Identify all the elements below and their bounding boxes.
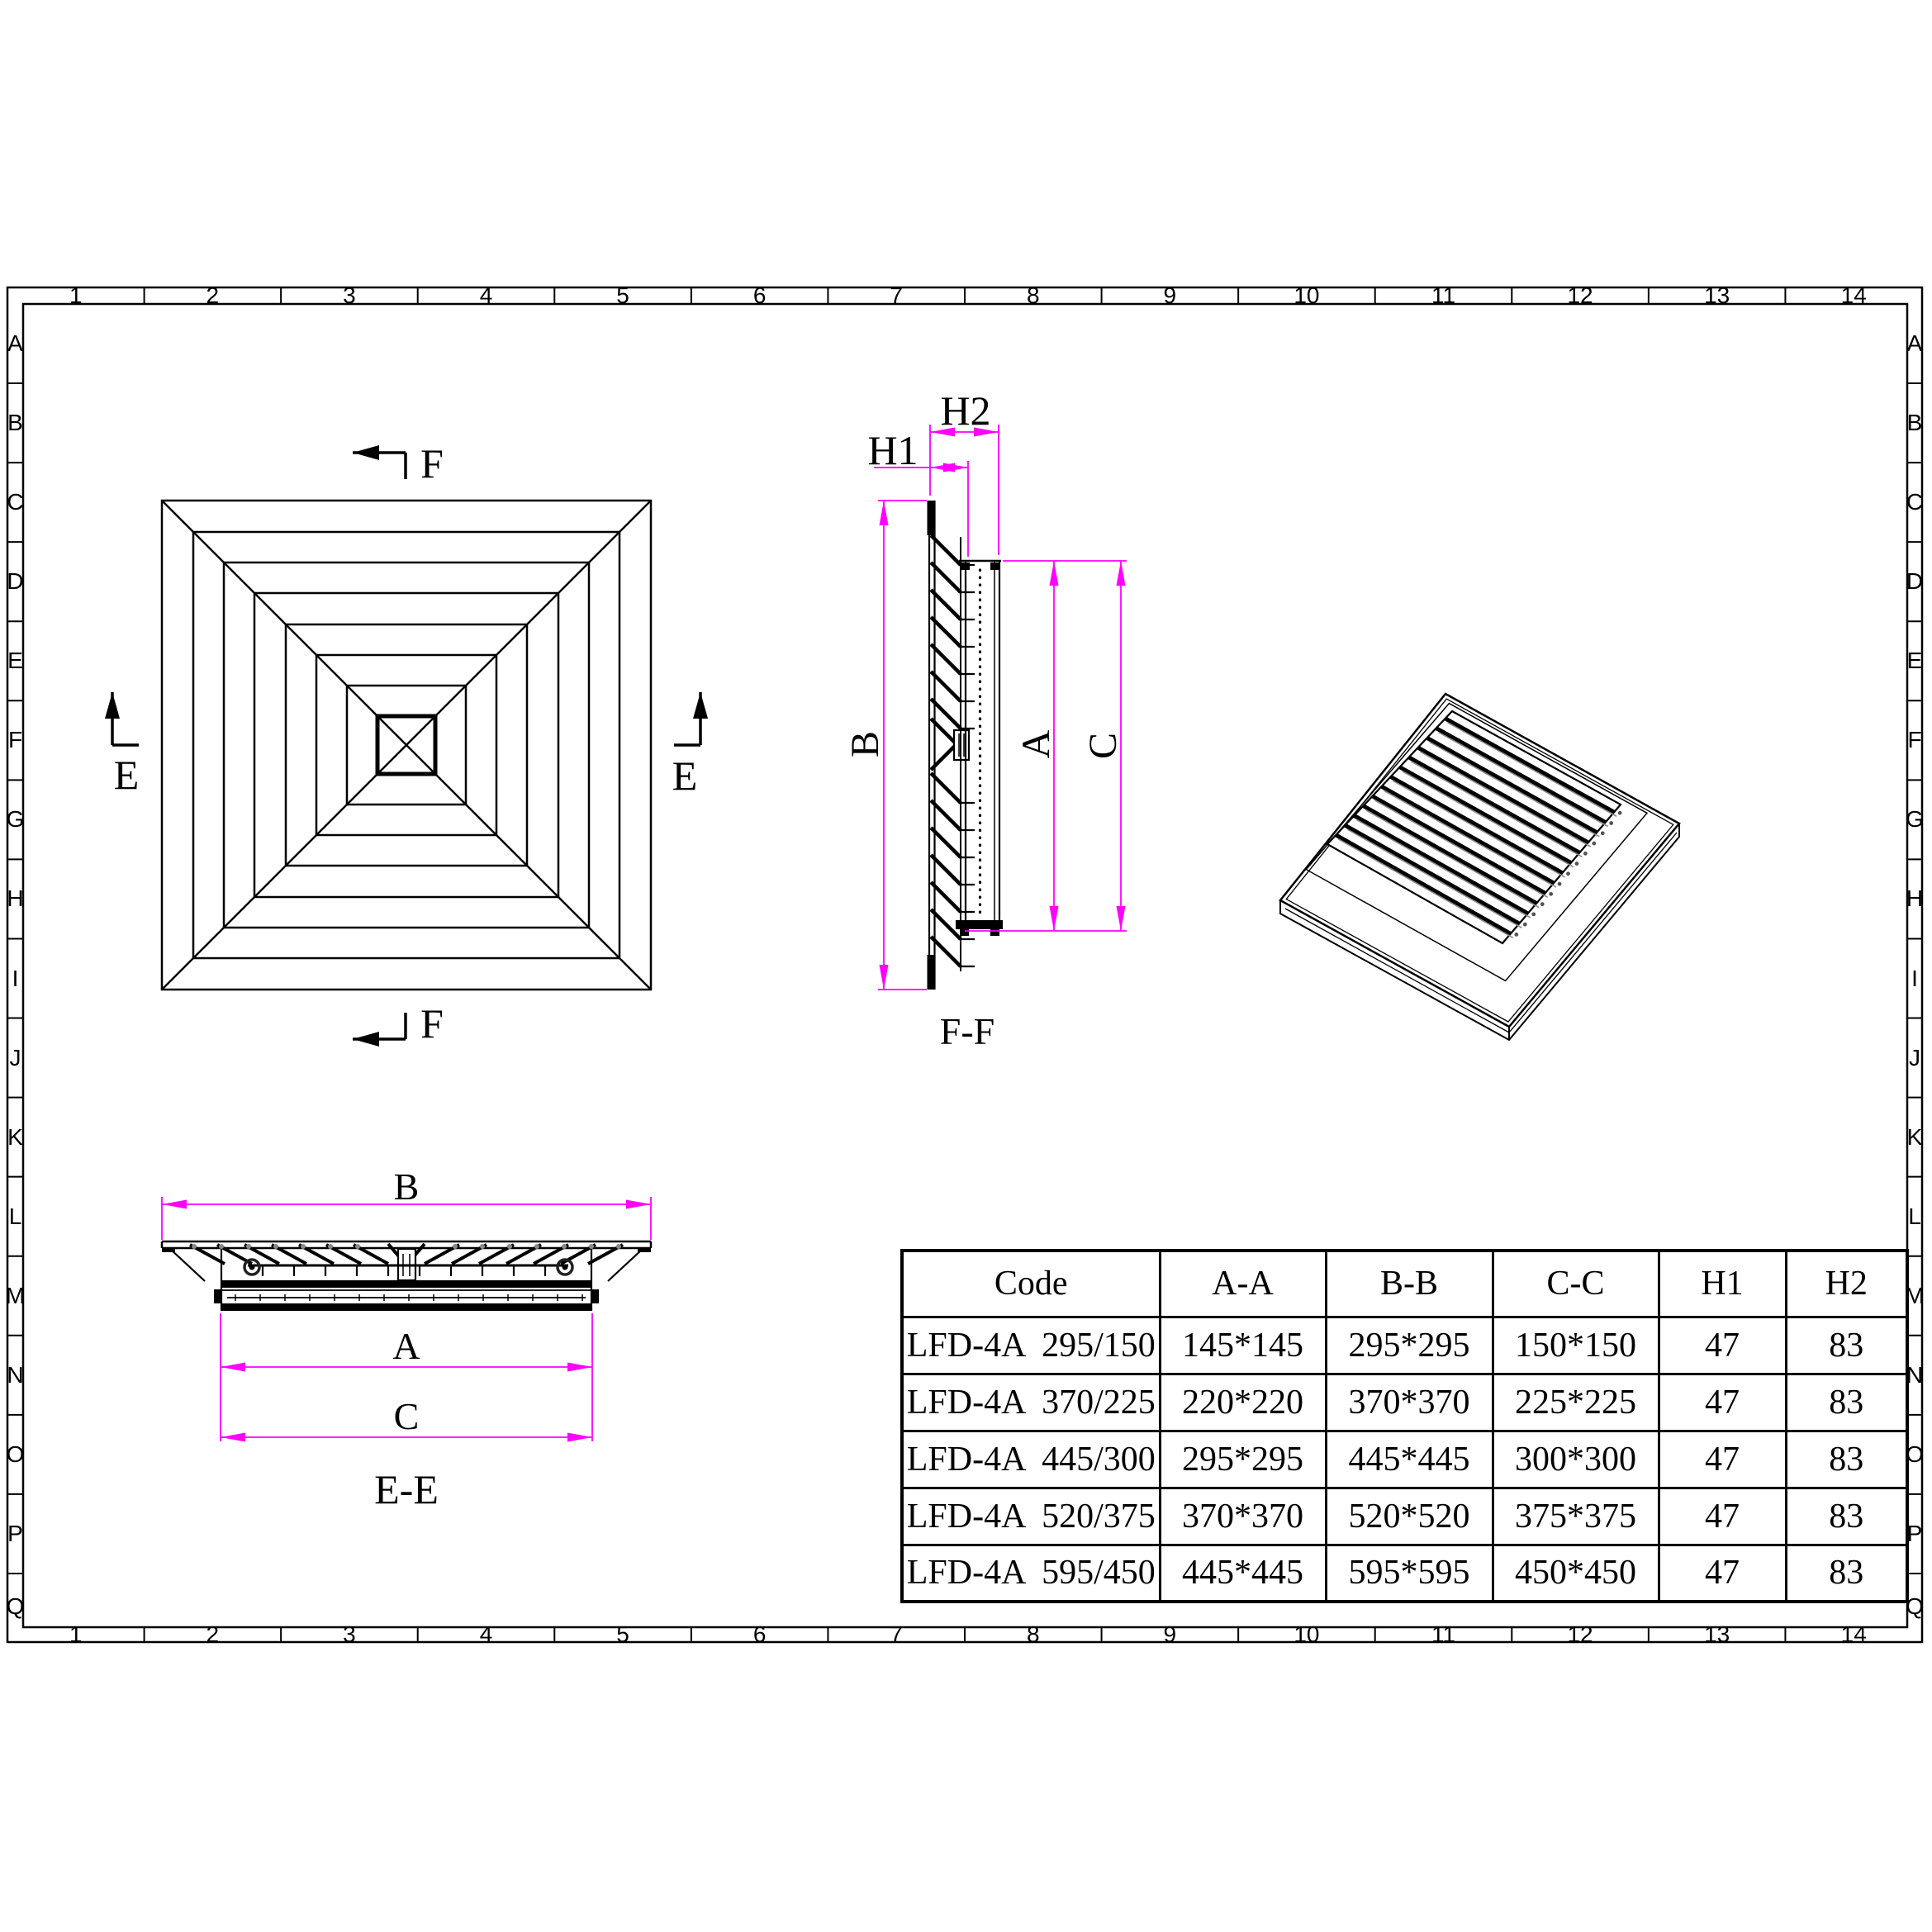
table-header-cell: C-C <box>1493 1251 1659 1317</box>
grid-column-label-top: 14 <box>1841 284 1867 307</box>
ff-dim-label-b: B <box>846 731 885 757</box>
grid-row-label-left: M <box>6 1284 25 1308</box>
ee-dim-label-b: B <box>394 1168 420 1206</box>
grid-row-label-left: D <box>7 570 23 593</box>
table-row: LFD-4A 295/150145*145295*295150*1504783 <box>902 1317 1907 1374</box>
grid-column-label-top: 2 <box>206 284 220 307</box>
table-cell: 150*150 <box>1493 1317 1659 1374</box>
grid-row-label-right: D <box>1906 570 1923 593</box>
table-cell: 47 <box>1659 1431 1786 1488</box>
grid-row-label-right: L <box>1908 1205 1921 1228</box>
table-cell: 220*220 <box>1160 1374 1326 1431</box>
table-cell: 595*595 <box>1326 1545 1493 1602</box>
table-cell: 370*370 <box>1160 1488 1326 1545</box>
grid-row-label-left: P <box>7 1522 23 1545</box>
ff-dim-label-h2: H2 <box>940 390 990 431</box>
grid-column-label-top: 8 <box>1027 284 1040 307</box>
table-cell: 300*300 <box>1493 1431 1659 1488</box>
table-cell: 83 <box>1786 1374 1907 1431</box>
grid-column-label-top: 9 <box>1164 284 1177 307</box>
plan-marker-f-top-label: F <box>420 443 444 484</box>
grid-row-label-left: G <box>7 808 25 831</box>
table-cell: LFD-4A 595/450 <box>902 1545 1160 1602</box>
table-header-cell: H1 <box>1659 1251 1786 1317</box>
isometric-view <box>1280 694 1679 1040</box>
table-cell: 83 <box>1786 1488 1907 1545</box>
grid-column-label-top: 11 <box>1431 284 1455 307</box>
grid-row-label-left: J <box>10 1047 21 1070</box>
grid-column-label-bottom: 3 <box>343 1623 356 1646</box>
grid-row-label-left: H <box>7 887 23 910</box>
grid-column-label-bottom: 10 <box>1294 1623 1319 1646</box>
grid-row-label-left: C <box>7 491 23 514</box>
table-cell: 47 <box>1659 1488 1786 1545</box>
grid-row-label-left: E <box>7 649 23 672</box>
table-row: LFD-4A 370/225220*220370*370225*2254783 <box>902 1374 1907 1431</box>
table-cell: 83 <box>1786 1317 1907 1374</box>
plan-view <box>105 445 708 1047</box>
table-row: LFD-4A 445/300295*295445*445300*3004783 <box>902 1431 1907 1488</box>
grid-column-label-top: 5 <box>616 284 629 307</box>
table-cell: 445*445 <box>1160 1545 1326 1602</box>
grid-row-label-right: C <box>1906 491 1923 514</box>
grid-row-label-right: E <box>1907 649 1923 672</box>
grid-row-label-right: J <box>1909 1047 1920 1070</box>
grid-column-label-bottom: 1 <box>69 1623 83 1646</box>
ff-dim-label-a: A <box>1017 730 1056 759</box>
ff-dim-label-c: C <box>1084 733 1123 759</box>
table-header-cell: A-A <box>1160 1251 1326 1317</box>
plan-marker-e-left-label: E <box>114 754 140 795</box>
grid-row-label-right: I <box>1911 967 1918 990</box>
table-cell: LFD-4A 295/150 <box>902 1317 1160 1374</box>
table-cell: 47 <box>1659 1545 1786 1602</box>
grid-column-label-bottom: 9 <box>1164 1623 1177 1646</box>
ee-dim-label-c: C <box>394 1398 420 1436</box>
drawing-sheet: F F E E H2 H1 B A C F-F B A C E-E 112233… <box>0 0 1932 1932</box>
plan-marker-e-right-label: E <box>672 755 698 796</box>
grid-column-label-bottom: 2 <box>206 1623 220 1646</box>
table-header-cell: Code <box>902 1251 1160 1317</box>
table-row: LFD-4A 595/450445*445595*595450*4504783 <box>902 1545 1907 1602</box>
table-header-cell: H2 <box>1786 1251 1907 1317</box>
grid-column-label-bottom: 4 <box>480 1623 493 1646</box>
table-cell: 83 <box>1786 1431 1907 1488</box>
grid-row-label-left: Q <box>7 1595 25 1618</box>
grid-row-label-left: K <box>7 1126 23 1149</box>
grid-column-label-top: 10 <box>1294 284 1319 307</box>
grid-column-label-bottom: 11 <box>1431 1623 1455 1646</box>
grid-column-label-top: 7 <box>890 284 903 307</box>
plan-marker-f-bottom-label: F <box>420 1003 444 1044</box>
table-cell: 145*145 <box>1160 1317 1326 1374</box>
table-cell: 375*375 <box>1493 1488 1659 1545</box>
table-cell: 47 <box>1659 1374 1786 1431</box>
grid-row-label-right: K <box>1907 1126 1923 1149</box>
table-cell: 83 <box>1786 1545 1907 1602</box>
grid-column-label-bottom: 8 <box>1027 1623 1040 1646</box>
ee-dim-label-a: A <box>392 1327 420 1365</box>
grid-row-label-right: P <box>1907 1522 1923 1545</box>
grid-row-label-right: F <box>1907 729 1921 752</box>
grid-column-label-top: 6 <box>753 284 767 307</box>
table-cell: 225*225 <box>1493 1374 1659 1431</box>
ee-view-title: E-E <box>374 1469 439 1510</box>
section-ff-view <box>874 425 1127 990</box>
ff-dim-label-h1: H1 <box>867 430 918 471</box>
grid-row-label-right: B <box>1907 411 1923 434</box>
grid-column-label-top: 1 <box>69 284 83 307</box>
grid-row-label-left: B <box>7 411 23 434</box>
table-header-row: CodeA-AB-BC-CH1H2 <box>902 1251 1907 1317</box>
grid-column-label-bottom: 13 <box>1704 1623 1730 1646</box>
table-cell: 520*520 <box>1326 1488 1493 1545</box>
grid-row-label-left: F <box>8 729 22 752</box>
grid-column-label-bottom: 5 <box>616 1623 629 1646</box>
table-cell: 445*445 <box>1326 1431 1493 1488</box>
grid-column-label-top: 13 <box>1704 284 1730 307</box>
table-cell: LFD-4A 520/375 <box>902 1488 1160 1545</box>
grid-column-label-top: 3 <box>343 284 356 307</box>
table-row: LFD-4A 520/375370*370520*520375*3754783 <box>902 1488 1907 1545</box>
table-cell: 47 <box>1659 1317 1786 1374</box>
grid-row-label-left: A <box>7 332 23 355</box>
table-cell: 450*450 <box>1493 1545 1659 1602</box>
grid-column-label-top: 4 <box>480 284 493 307</box>
cad-linework <box>0 0 1932 1932</box>
grid-row-label-right: A <box>1907 332 1923 355</box>
grid-row-label-left: I <box>12 967 19 990</box>
grid-row-label-right: H <box>1906 887 1923 910</box>
grid-row-label-right: G <box>1906 808 1924 831</box>
table-cell: 295*295 <box>1160 1431 1326 1488</box>
grid-column-label-bottom: 14 <box>1841 1623 1867 1646</box>
grid-row-label-left: N <box>7 1364 23 1387</box>
grid-column-label-bottom: 6 <box>753 1623 767 1646</box>
grid-column-label-top: 12 <box>1567 284 1593 307</box>
table-header-cell: B-B <box>1326 1251 1493 1317</box>
grid-row-label-left: L <box>9 1205 22 1228</box>
table-cell: 370*370 <box>1326 1374 1493 1431</box>
grid-column-label-bottom: 7 <box>890 1623 903 1646</box>
grid-row-label-left: O <box>7 1443 25 1466</box>
grid-column-label-bottom: 12 <box>1567 1623 1593 1646</box>
ff-view-title: F-F <box>940 1013 994 1051</box>
table-cell: 295*295 <box>1326 1317 1493 1374</box>
spec-table: CodeA-AB-BC-CH1H2 LFD-4A 295/150145*1452… <box>900 1249 1909 1603</box>
table-cell: LFD-4A 370/225 <box>902 1374 1160 1431</box>
table-cell: LFD-4A 445/300 <box>902 1431 1160 1488</box>
